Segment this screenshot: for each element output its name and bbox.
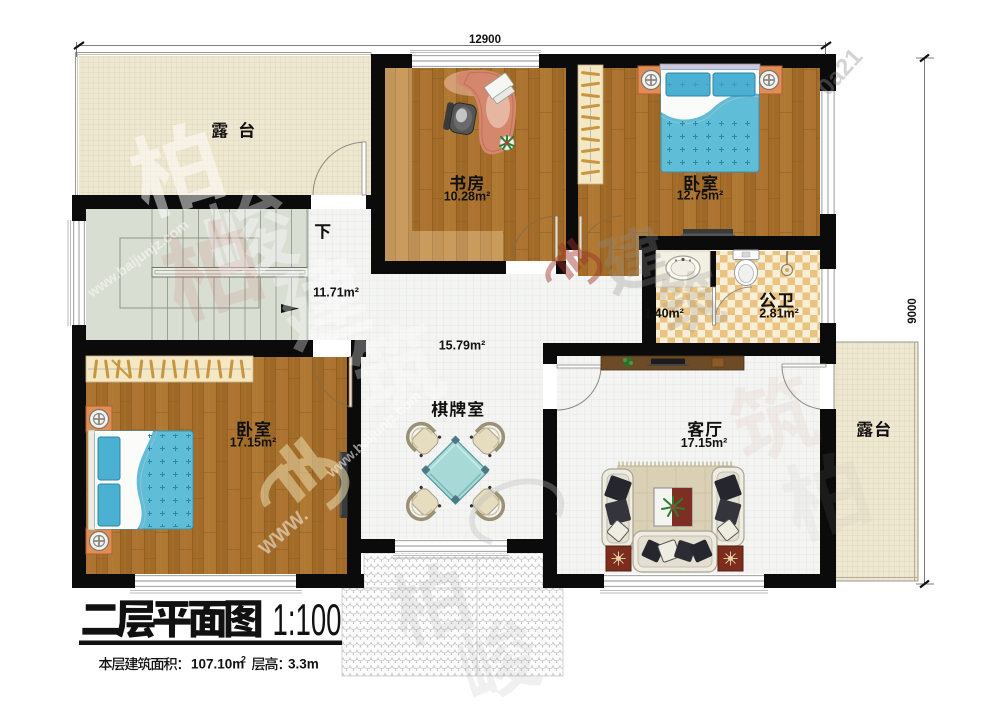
svg-text:2: 2 [241, 655, 246, 665]
svg-text:11.71m²: 11.71m² [313, 286, 359, 300]
svg-text:107.10m: 107.10m [191, 657, 244, 672]
svg-text:1.40m²: 1.40m² [644, 307, 684, 321]
svg-text:2.81m²: 2.81m² [759, 307, 799, 321]
svg-text:1:100: 1:100 [272, 594, 341, 644]
svg-text:12.75m²: 12.75m² [677, 189, 724, 203]
svg-text:3.3m: 3.3m [288, 657, 319, 672]
svg-text:9000: 9000 [907, 298, 919, 324]
svg-text:17.15m²: 17.15m² [230, 436, 277, 450]
svg-text:17.15m²: 17.15m² [681, 436, 728, 450]
svg-text:15.79m²: 15.79m² [439, 339, 486, 353]
svg-text:10.28m²: 10.28m² [444, 190, 491, 204]
svg-text:12900: 12900 [469, 34, 501, 46]
